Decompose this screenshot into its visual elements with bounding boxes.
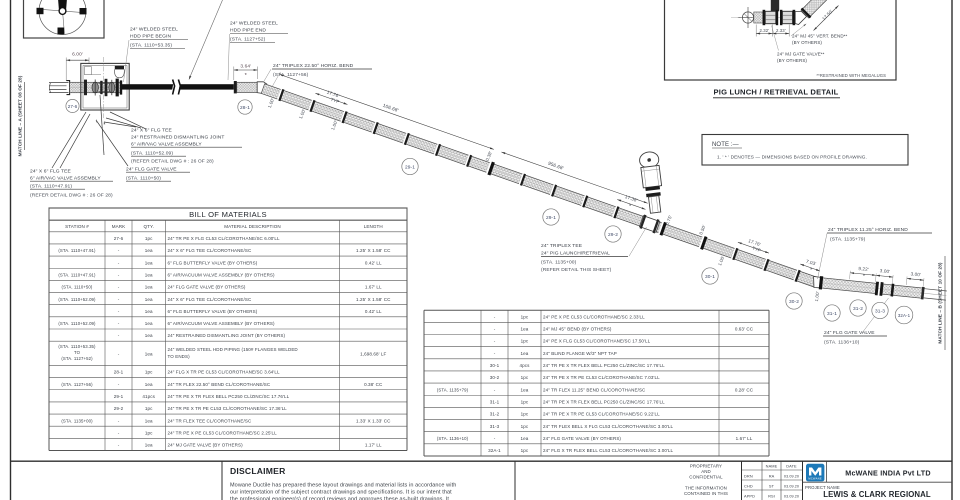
svg-text:1.00': 1.00' [717,255,725,266]
svg-text:2.33': 2.33' [776,28,786,33]
svg-text:-: - [118,443,120,448]
svg-text:956.68': 956.68' [547,161,564,172]
svg-text:24" FLG X TR PE CL53 CL/COROTH: 24" FLG X TR PE CL53 CL/COROTHANE/SC 3.6… [168,370,280,375]
svg-text:(STA. 1110+53.35): (STA. 1110+53.35) [130,43,172,49]
svg-text:1ea: 1ea [145,382,153,387]
svg-text:6" FLG BUTTERFLY VALVE (BY OTH: 6" FLG BUTTERFLY VALVE (BY OTHERS) [168,309,258,314]
svg-text:(STA. 1135+00): (STA. 1135+00) [61,418,93,423]
svg-text:-: - [494,327,496,332]
svg-text:24" MJ 45° VERT. BEND**: 24" MJ 45° VERT. BEND** [792,34,848,39]
svg-text:(STA. 1136+10): (STA. 1136+10) [437,436,469,441]
svg-text:1ea: 1ea [145,351,153,356]
svg-text:-: - [118,382,120,387]
svg-text:1ea: 1ea [521,351,529,356]
svg-text:(STA. 1135+79): (STA. 1135+79) [437,387,469,392]
svg-text:0.38' CC: 0.38' CC [364,382,383,387]
svg-text:24" FLG GATE VALVE (BY OTHERS): 24" FLG GATE VALVE (BY OTHERS) [543,436,621,441]
svg-text:24" RESTRAINED DISMANTLING JOI: 24" RESTRAINED DISMANTLING JOINT (BY OTH… [168,333,286,338]
svg-text:1ea: 1ea [145,285,153,290]
svg-text:(STA. 1110+50): (STA. 1110+50) [62,285,93,290]
svg-text:6" AIR/VACUUM VALVE ASSEMBLY (: 6" AIR/VACUUM VALVE ASSEMBLY (BY OTHERS) [168,272,276,277]
svg-text:ST: ST [769,484,775,489]
svg-text:-: - [494,314,496,319]
svg-text:24" PIG LAUNCH/RETRIEVAL: 24" PIG LAUNCH/RETRIEVAL [541,251,610,257]
svg-text:(STA. 1110+52.09): (STA. 1110+52.09) [131,151,173,157]
svg-text:-: - [118,351,120,356]
svg-text:24" TR FLEX 22.50° BEND CL/COR: 24" TR FLEX 22.50° BEND CL/COROTHANE/SC [168,382,271,387]
svg-text:CONTAINED IN THIS: CONTAINED IN THIS [684,491,728,496]
svg-text:DRN: DRN [744,474,753,479]
svg-text:1. ' * ' DENOTES — DIMENSI: 1. ' * ' DENOTES — DIMENSIONS BASED ON P… [717,155,867,160]
svg-text:1.00': 1.00' [267,97,275,108]
svg-text:1ea: 1ea [145,321,153,326]
svg-text:1ea: 1ea [145,309,153,314]
svg-text:3.00': 3.00' [910,271,921,277]
svg-text:(STA. 1135+00): (STA. 1135+00) [541,260,577,266]
svg-text:PROPRIETARY: PROPRIETARY [690,464,722,469]
svg-text:-: - [118,297,120,302]
svg-text:our interpretation of the subj: our interpretation of the subject contra… [230,490,452,496]
svg-text:1.33' X 1.33' CC: 1.33' X 1.33' CC [356,418,391,423]
svg-text:(STA. 1127+56): (STA. 1127+56) [273,72,309,78]
svg-text:1ea: 1ea [521,387,529,392]
svg-text:24" X 6" FLG TEE: 24" X 6" FLG TEE [30,169,72,175]
svg-text:APPD: APPD [744,494,755,499]
svg-text:RA: RA [769,474,775,479]
svg-text:1ea: 1ea [521,327,529,332]
svg-text:6" FLG BUTTERFLY VALVE (BY OTH: 6" FLG BUTTERFLY VALVE (BY OTHERS) [168,260,258,265]
svg-text:McWANE INDIA Pvt LTD: McWANE INDIA Pvt LTD [845,468,930,477]
svg-text:24" TR PE X TR FLEX BELL PC250: 24" TR PE X TR FLEX BELL PC250 CL/ZINC/S… [543,363,665,368]
svg-text:3.64': 3.64' [240,64,251,70]
svg-text:2.32': 2.32' [759,28,769,33]
svg-text:-: - [118,333,120,338]
svg-text:30-1: 30-1 [490,363,500,368]
svg-text:24" TR PE X TR FLEX BELL PC250: 24" TR PE X TR FLEX BELL PC250 CL/ZINC/S… [543,399,665,404]
svg-text:24" TRIPLEX TEE: 24" TRIPLEX TEE [541,243,583,249]
svg-text:1pc: 1pc [145,236,153,241]
svg-text:31-2: 31-2 [853,306,863,312]
svg-text:1pc: 1pc [145,370,153,375]
svg-text:24" TRIPLEX 22.50° HORIZ. B: 24" TRIPLEX 22.50° HORIZ. BEND [273,63,354,69]
svg-text:1ea: 1ea [145,272,153,277]
svg-text:31-1: 31-1 [490,399,500,404]
svg-text:1ea: 1ea [145,260,153,265]
svg-text:31-2: 31-2 [490,412,500,417]
svg-text:9.22': 9.22' [858,266,869,272]
svg-text:-: - [118,321,120,326]
svg-text:29-2: 29-2 [608,232,618,238]
svg-text:(STA. 1110+53.35): (STA. 1110+53.35) [58,344,96,349]
svg-text:HDD PIPE BEGIN: HDD PIPE BEGIN [130,34,171,40]
svg-text:32A-1: 32A-1 [898,313,911,318]
svg-text:1.00': 1.00' [330,120,338,131]
svg-text:TO: TO [74,350,81,355]
svg-text:24" MJ GATE VALVE (BY OTHERS): 24" MJ GATE VALVE (BY OTHERS) [168,443,244,448]
svg-text:1.67' LL: 1.67' LL [365,285,382,290]
svg-text:29-1: 29-1 [405,165,415,171]
svg-text:6" AIR/VACUUM VALVE ASSEMBLY (: 6" AIR/VACUUM VALVE ASSEMBLY (BY OTHERS) [168,321,276,326]
svg-text:Mowane Ductile has prepared th: Mowane Ductile has prepared these layout… [230,483,456,489]
svg-text:24" MJ GATE VALVE**: 24" MJ GATE VALVE** [777,52,825,57]
svg-text:24" TR PE X PE CL53 CL/COROTHA: 24" TR PE X PE CL53 CL/COROTHANE/SC 2.25… [168,430,278,435]
svg-text:28-1: 28-1 [240,105,250,111]
svg-text:1.00': 1.00' [814,291,820,302]
svg-text:29-2: 29-2 [114,406,124,411]
svg-text:28-1: 28-1 [114,370,124,375]
svg-text:4pcs: 4pcs [519,363,530,368]
svg-text:31-3: 31-3 [875,309,885,315]
svg-text:24" X 6" FLG TEE CL/COROTHANE/: 24" X 6" FLG TEE CL/COROTHANE/SC [168,297,252,302]
svg-text:(BY OTHERS): (BY OTHERS) [777,58,807,63]
svg-text:31-3: 31-3 [490,424,500,429]
svg-text:24" PE X FLG CL53 CL/COROTHANE: 24" PE X FLG CL53 CL/COROTHANE/SC 17.50'… [543,339,651,344]
svg-text:1pc: 1pc [521,448,529,453]
svg-text:6" AIR/VAC VALVE ASSEMBLY: 6" AIR/VAC VALVE ASSEMBLY [131,142,202,148]
svg-text:24" WELDED STEEL HDD PIPING (1: 24" WELDED STEEL HDD PIPING (150# FLANGE… [168,347,299,352]
svg-text:24" TR PE X TR PE CL53 CL/CORO: 24" TR PE X TR PE CL53 CL/COROTHANE/SC 9… [543,412,660,417]
svg-text:(STA. 1135+79): (STA. 1135+79) [830,237,866,243]
svg-text:QTY.: QTY. [144,224,154,229]
svg-text:41pcs: 41pcs [142,394,155,399]
svg-text:24" BLIND FLANGE W/3" NPT TAP: 24" BLIND FLANGE W/3" NPT TAP [543,351,617,356]
svg-text:0.42' LL: 0.42' LL [365,260,382,265]
svg-text:0.63' CC: 0.63' CC [735,327,754,332]
svg-text:1pc: 1pc [521,412,529,417]
svg-text:(REFER DETAIL THIS SHEET): (REFER DETAIL THIS SHEET) [541,267,612,273]
svg-text:-: - [118,430,120,435]
svg-text:-: - [494,339,496,344]
svg-text:24" WELDED STEEL: 24" WELDED STEEL [130,27,178,33]
svg-text:(STA. 1110+52.09): (STA. 1110+52.09) [58,297,96,302]
svg-text:0.38': 0.38' [485,150,493,161]
svg-text:0.28' CC: 0.28' CC [735,387,754,392]
svg-text:24" RESTRAINED DISMANTLING JOI: 24" RESTRAINED DISMANTLING JOINT [131,135,225,141]
svg-text:1pc: 1pc [145,430,153,435]
svg-text:03.09.20: 03.09.20 [784,485,799,489]
svg-text:(REFER DETAIL DWG # : 26 OF 28: (REFER DETAIL DWG # : 26 OF 28) [30,193,113,199]
svg-text:STATION #: STATION # [65,224,89,229]
svg-text:1ea: 1ea [145,333,153,338]
svg-text:-: - [118,260,120,265]
svg-text:24" TR PE X FLG CL53 CL/COROTH: 24" TR PE X FLG CL53 CL/COROTHANE/SC 6.0… [168,236,280,241]
svg-text:*: * [245,73,248,79]
svg-text:24" TR FLEX BELL X FLG CL53 CL: 24" TR FLEX BELL X FLG CL53 CL/COROTHANE… [543,424,674,429]
svg-text:PIG LUNCH / RETRIEVAL DETAIL: PIG LUNCH / RETRIEVAL DETAIL [714,88,839,97]
svg-text:1ea: 1ea [145,443,153,448]
svg-text:1ea: 1ea [521,436,529,441]
svg-text:1.17' LL: 1.17' LL [365,443,382,448]
svg-text:MATCH LINE – A (SHEET 08 OF 28: MATCH LINE – A (SHEET 08 OF 28) [18,75,23,156]
svg-text:LENGTH: LENGTH [364,224,383,229]
svg-text:1ea: 1ea [145,418,153,423]
svg-text:24" X 6" FLG TEE: 24" X 6" FLG TEE [131,128,173,134]
svg-text:24" TR FLEX 11.25° BEND CL/COR: 24" TR FLEX 11.25° BEND CL/COROTHANE/SC [543,387,646,392]
svg-text:24" FLG X TR FLEX BELL CL53 CL: 24" FLG X TR FLEX BELL CL53 CL/COROTHANE… [543,448,674,453]
svg-text:1pc: 1pc [521,339,529,344]
svg-text:NAME: NAME [766,464,778,469]
svg-text:MCWANE: MCWANE [808,477,822,481]
svg-text:(BY OTHERS): (BY OTHERS) [792,40,822,45]
svg-text:TO ENDS): TO ENDS) [168,354,191,359]
svg-text:(STA. 1110+47.91): (STA. 1110+47.91) [58,272,96,277]
svg-text:03.09.20: 03.09.20 [784,475,799,479]
svg-text:0.50': 0.50' [698,224,706,235]
svg-text:(STA. 1127+52): (STA. 1127+52) [230,37,266,43]
svg-text:THE INFORMATION: THE INFORMATION [685,486,727,491]
svg-text:-: - [118,272,120,277]
svg-text:27-6: 27-6 [114,236,124,241]
svg-text:27-6: 27-6 [68,104,78,109]
svg-text:DATE: DATE [786,464,797,469]
svg-text:24" WELDED STEEL: 24" WELDED STEEL [230,21,278,27]
svg-text:MARK: MARK [112,224,126,229]
svg-text:1.25' X 1.58' CC: 1.25' X 1.58' CC [356,248,391,253]
svg-text:(STA. 1110+47.91): (STA. 1110+47.91) [58,248,96,253]
svg-text:24" TRIPLEX 11.25° HORIZ. B: 24" TRIPLEX 11.25° HORIZ. BEND [828,227,908,233]
svg-text:MATCH LINE – B (SHEET 10 OF 28: MATCH LINE – B (SHEET 10 OF 28) [938,262,943,343]
svg-text:-: - [118,418,120,423]
svg-text:24" TR FLEX TEE CL/COROTHANE/S: 24" TR FLEX TEE CL/COROTHANE/SC [168,418,252,423]
svg-text:24" TR PE X TR PE CL53 CL/CORO: 24" TR PE X TR PE CL53 CL/COROTHANE/SC 7… [543,375,660,380]
svg-text:(STA. 1127+52): (STA. 1127+52) [61,356,93,361]
svg-text:-: - [494,387,496,392]
svg-text:(STA. 1110+47.91): (STA. 1110+47.91) [30,184,72,190]
svg-text:1.67' LL: 1.67' LL [736,436,753,441]
svg-text:CONFIDENTIAL: CONFIDENTIAL [689,475,723,480]
svg-text:(STA. 1136+10): (STA. 1136+10) [824,340,860,346]
svg-text:-: - [494,436,496,441]
svg-text:0.42' LL: 0.42' LL [365,309,382,314]
svg-text:30-1: 30-1 [705,274,715,280]
svg-text:29-1: 29-1 [114,394,124,399]
svg-text:24" MJ 45° BEND (BY OTHERS): 24" MJ 45° BEND (BY OTHERS) [543,327,612,332]
svg-text:24" FLG GATE VALVE: 24" FLG GATE VALVE [126,167,177,173]
svg-text:(REFER DETAIL DWG # : 26 OF 28: (REFER DETAIL DWG # : 26 OF 28) [131,159,214,165]
svg-text:3.00': 3.00' [880,268,891,274]
svg-text:1pc: 1pc [521,314,529,319]
svg-text:31-1: 31-1 [827,311,837,317]
svg-text:1pc: 1pc [521,424,529,429]
svg-text:106.68': 106.68' [382,103,399,114]
svg-text:24" X 6" FLG TEE CL/COROTHANE/: 24" X 6" FLG TEE CL/COROTHANE/SC [168,248,252,253]
svg-text:29-1: 29-1 [546,215,556,221]
svg-text:30-2: 30-2 [490,375,500,380]
svg-text:DISCLAIMER: DISCLAIMER [230,466,286,476]
svg-text:24" FLG GATE VALVE: 24" FLG GATE VALVE [824,330,875,336]
svg-text:-: - [494,351,496,356]
svg-text:AND: AND [701,469,711,474]
svg-text:7.03': 7.03' [806,259,817,267]
svg-text:1.25' X 1.58' CC: 1.25' X 1.58' CC [356,297,391,302]
svg-text:-: - [118,285,120,290]
svg-text:24" FLG GATE VALVE (BY OTHERS): 24" FLG GATE VALVE (BY OTHERS) [168,285,246,290]
svg-text:(STA. 1110+50): (STA. 1110+50) [126,176,161,182]
svg-text:1pc: 1pc [145,406,153,411]
svg-text:CHD: CHD [744,484,753,489]
svg-text:0.75': 0.75' [665,214,673,225]
svg-text:*: * [862,274,865,280]
svg-text:1.00': 1.00' [298,108,306,119]
svg-text:HDD PIPE END: HDD PIPE END [230,28,266,34]
svg-text:1ea: 1ea [145,297,153,302]
svg-text:-: - [118,248,120,253]
svg-text:6" AIR/VAC VALVE ASSEMBLY: 6" AIR/VAC VALVE ASSEMBLY [30,176,101,182]
svg-text:24" TR PE X TR FLEX BELL PC250: 24" TR PE X TR FLEX BELL PC250 CL/ZINC/S… [168,394,290,399]
svg-text:LEWIS & CLARK REGIONAL: LEWIS & CLARK REGIONAL [823,490,931,499]
svg-text:(STA. 1110+52.09): (STA. 1110+52.09) [58,321,96,326]
svg-text:1pc: 1pc [521,375,529,380]
svg-text:32A-1: 32A-1 [488,448,501,453]
svg-text:03.09.20: 03.09.20 [784,495,799,499]
svg-text:MATERIAL DESCRIPTION: MATERIAL DESCRIPTION [224,224,281,229]
svg-text:30-2: 30-2 [789,299,799,305]
svg-text:RSI: RSI [768,494,775,499]
svg-text:24" TR PE X TR PE CL53 CL/CORO: 24" TR PE X TR PE CL53 CL/COROTHANE/SC 1… [168,406,288,411]
svg-text:1ea: 1ea [145,248,153,253]
svg-text:**RESTRAINED WITH MEGALUGS: **RESTRAINED WITH MEGALUGS [816,73,886,78]
svg-text:17.50': 17.50' [821,9,834,22]
svg-text:-: - [118,309,120,314]
svg-text:6.00': 6.00' [72,52,83,58]
svg-text:17.36': 17.36' [624,194,638,203]
svg-text:24" PE X PE CL53 CL/COROTHANE/: 24" PE X PE CL53 CL/COROTHANE/SC 2.33'LL [543,314,645,319]
svg-text:1,698.68' LF: 1,698.68' LF [360,351,386,356]
svg-text:1pc: 1pc [521,399,529,404]
svg-text:NOTE :—: NOTE :— [712,142,739,148]
svg-text:(STA. 1127+56): (STA. 1127+56) [61,382,93,387]
svg-text:BILL OF MATERIALS: BILL OF MATERIALS [189,210,267,219]
